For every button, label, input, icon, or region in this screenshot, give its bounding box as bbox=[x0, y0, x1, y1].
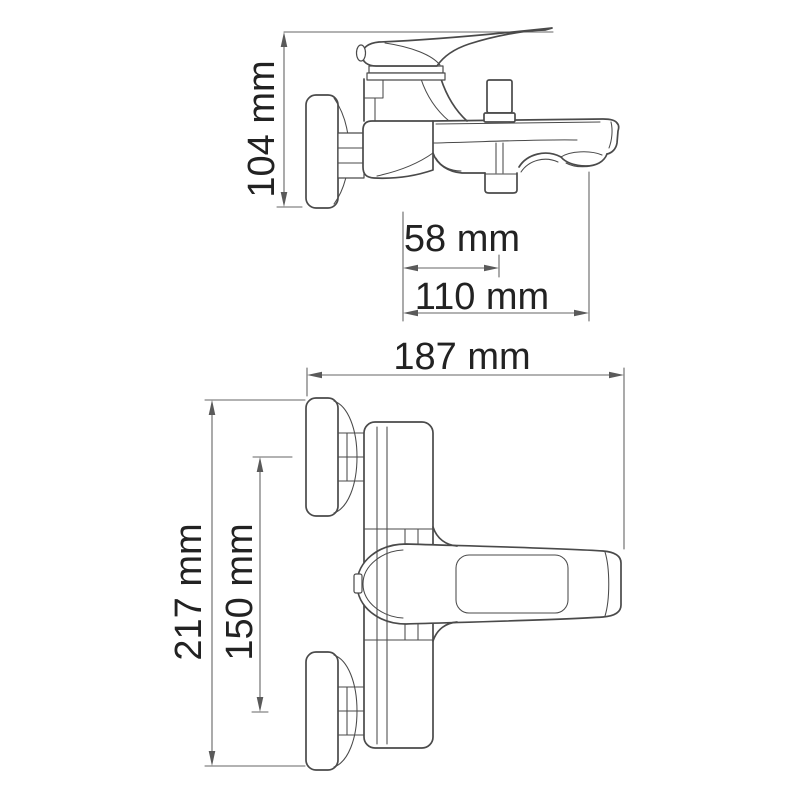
lever-handle-plan bbox=[357, 544, 621, 624]
collar-ring-lower bbox=[367, 73, 445, 80]
handle-indicator-tab bbox=[354, 574, 362, 593]
depth-dimension-187mm: 187 mm bbox=[307, 336, 624, 549]
technical-drawing-page: 104 mm 58 mm 110 mm bbox=[0, 0, 800, 800]
outlet-offset-dimension-58mm: 58 mm bbox=[403, 218, 520, 271]
valve-body bbox=[363, 121, 433, 178]
wall-flange bbox=[306, 95, 338, 208]
arrow-left-icon bbox=[307, 372, 322, 379]
lever-handle bbox=[362, 28, 552, 66]
dimension-label-104mm: 104 mm bbox=[241, 60, 283, 197]
diverter-base bbox=[484, 113, 515, 122]
arrow-left-icon bbox=[403, 265, 418, 272]
upper-supply-stem bbox=[338, 433, 364, 481]
dimension-label-58mm: 58 mm bbox=[404, 218, 520, 260]
spout-reach-dimension-110mm: 110 mm bbox=[403, 276, 589, 318]
union-connector bbox=[338, 133, 364, 178]
spout bbox=[433, 119, 619, 193]
technical-drawing-canvas: 104 mm 58 mm 110 mm bbox=[0, 0, 800, 800]
lower-supply-stem bbox=[338, 687, 364, 735]
arrow-down-icon bbox=[257, 697, 264, 712]
lower-escutcheon bbox=[306, 652, 338, 770]
cartridge-housing bbox=[364, 79, 467, 121]
bottom-outlet-stub bbox=[485, 173, 517, 193]
arrow-down-icon bbox=[209, 751, 216, 766]
diverter-knob bbox=[487, 80, 512, 113]
dimension-label-150mm: 150 mm bbox=[219, 523, 261, 660]
arrow-right-icon bbox=[609, 372, 624, 379]
collar-ring-upper bbox=[369, 66, 443, 73]
spout-tip bbox=[607, 123, 619, 154]
plan-view: 187 mm 217 mm 150 mm bbox=[168, 336, 624, 770]
arrow-right-icon bbox=[484, 265, 499, 272]
dimension-label-187mm: 187 mm bbox=[393, 336, 530, 378]
height-dimension-104mm: 104 mm bbox=[241, 32, 287, 207]
connection-spacing-dimension-150mm: 150 mm bbox=[219, 457, 292, 712]
arrow-up-icon bbox=[281, 32, 288, 47]
upper-escutcheon bbox=[306, 398, 338, 516]
faucet-side-view bbox=[306, 28, 619, 208]
dimension-label-110mm: 110 mm bbox=[415, 276, 549, 318]
plan-view-extension-lines bbox=[307, 368, 624, 549]
handle-end-knob bbox=[357, 45, 366, 61]
faucet-plan-view bbox=[306, 398, 621, 770]
side-elevation-view: 104 mm 58 mm 110 mm bbox=[241, 28, 619, 321]
dimension-label-217mm: 217 mm bbox=[168, 523, 210, 660]
arrow-right-icon bbox=[574, 310, 589, 317]
arrow-up-icon bbox=[257, 457, 264, 472]
arrow-up-icon bbox=[209, 400, 216, 415]
